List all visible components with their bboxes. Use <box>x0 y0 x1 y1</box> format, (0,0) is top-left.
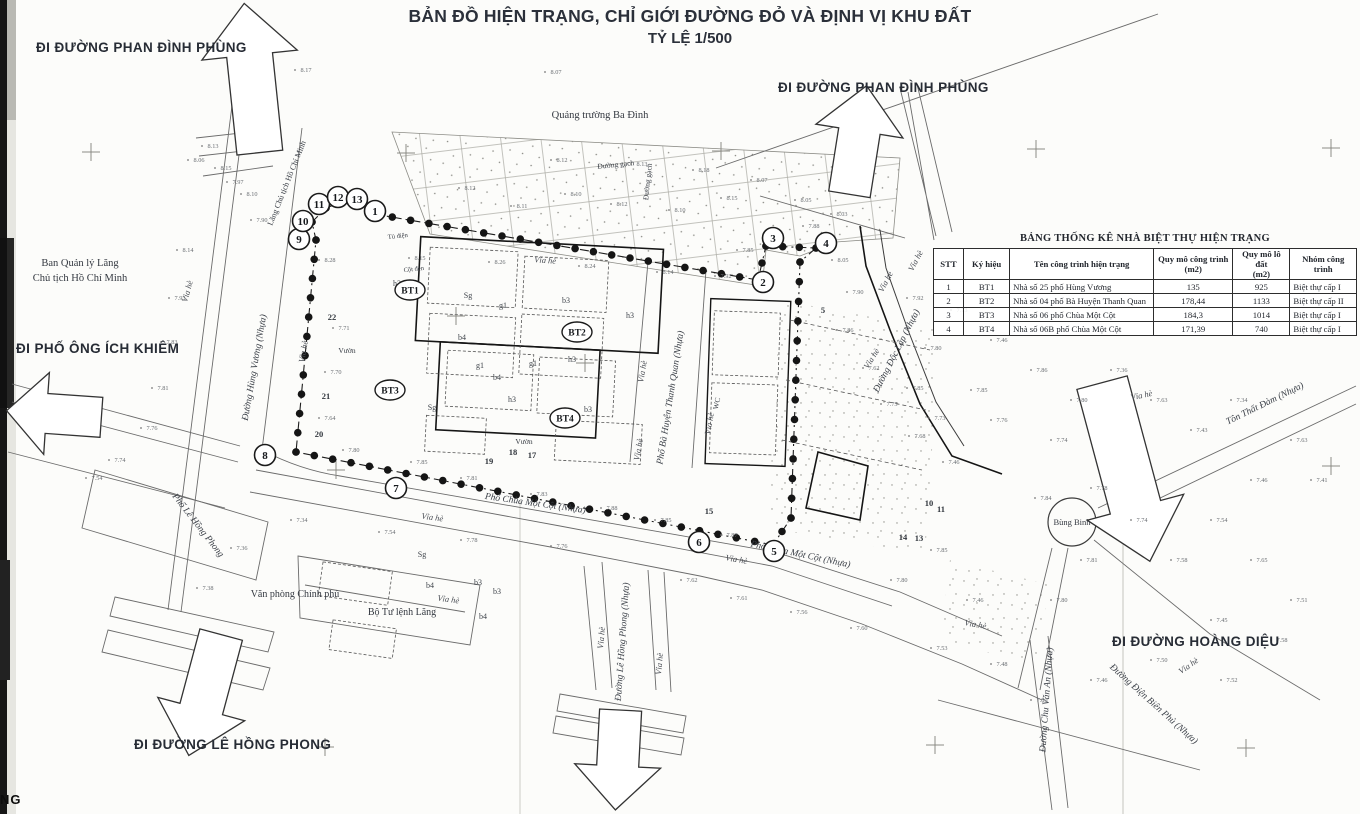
spot-elevation-dot <box>151 387 153 389</box>
spot-elevation: 8.26 <box>494 259 505 266</box>
spot-elevation: 8.05 <box>837 257 848 264</box>
spot-elevation: 7.80 <box>896 577 907 584</box>
spot-elevation: 7.71 <box>338 325 349 332</box>
block-code: h3 <box>568 355 576 364</box>
boundary-dot <box>571 245 579 253</box>
spot-elevation: 7.90 <box>256 217 267 224</box>
boundary-dot <box>310 255 318 263</box>
boundary-dot <box>699 267 707 275</box>
boundary-dot <box>498 232 506 240</box>
spot-elevation: 8.07 <box>756 177 767 184</box>
spot-elevation: 8.10 <box>570 191 581 198</box>
spot-elevation: 8.24 <box>584 263 596 270</box>
spot-elevation-dot <box>1070 399 1072 401</box>
spot-elevation: 7.46 <box>948 459 959 466</box>
boundary-dot <box>517 235 525 243</box>
spot-elevation: 8.12 <box>616 201 627 208</box>
spot-elevation: 7.36 <box>236 545 247 552</box>
spot-elevation-dot <box>1150 659 1152 661</box>
boundary-dot <box>681 264 689 272</box>
boundary-dot <box>795 298 803 306</box>
spot-elevation-dot <box>564 193 566 195</box>
spot-elevation-dot <box>176 249 178 251</box>
stats-cell: Biệt thự cấp I <box>1290 322 1357 336</box>
spot-elevation-dot <box>140 427 142 429</box>
spot-elevation: 7.45 <box>1216 617 1227 624</box>
spot-elevation-dot <box>1090 679 1092 681</box>
spot-elevation: 7.76 <box>996 417 1007 424</box>
spot-elevation-dot <box>290 519 292 521</box>
map-canvas: Quảng trường Ba ĐìnhBan Quản lý LăngChủ … <box>0 0 1360 814</box>
spot-elevation: 7.46 <box>1256 477 1267 484</box>
spot-elevation: 7.46 <box>996 337 1007 344</box>
boundary-dot <box>678 523 686 531</box>
boundary-dot <box>439 477 447 485</box>
boundary-point-number: 4 <box>823 238 829 250</box>
spot-elevation-dot <box>460 539 462 541</box>
crosshair-mark <box>1322 457 1340 475</box>
spot-elevation-dot <box>928 417 930 419</box>
lot-number: 5 <box>821 305 825 315</box>
spot-elevation: 7.81 <box>466 475 477 482</box>
boundary-dot <box>793 337 801 345</box>
spot-elevation-dot <box>1190 429 1192 431</box>
block-code: b3 <box>562 296 570 305</box>
block-code: b3 <box>493 587 501 596</box>
spot-elevation: 7.51 <box>1296 597 1307 604</box>
direction-arrows <box>7 3 1184 810</box>
spot-elevation: 7.63 <box>1156 397 1167 404</box>
spot-elevation-dot <box>458 187 460 189</box>
boundary-dot <box>792 376 800 384</box>
spot-elevation-dot <box>1220 679 1222 681</box>
direction-arrow <box>575 709 661 810</box>
stats-cell: 2 <box>934 294 964 308</box>
crosshair-mark <box>576 354 594 372</box>
spot-elevation: 7.83 <box>536 491 547 498</box>
boundary-dot <box>384 466 392 474</box>
spot-elevation-dot <box>1050 599 1052 601</box>
scan-corner-fragment: NG <box>0 792 22 807</box>
spot-elevation: 7.86 <box>842 327 853 334</box>
spot-elevation: 8.03 <box>836 211 847 218</box>
spot-elevation: 7.58 <box>1176 557 1187 564</box>
boundary-point-number: 1 <box>372 206 378 218</box>
sheet-title: BẢN ĐỒ HIỆN TRẠNG, CHỈ GIỚI ĐƯỜNG ĐỎ VÀ … <box>340 6 1040 47</box>
spot-elevation-dot <box>530 493 532 495</box>
boundary-dot <box>663 261 671 269</box>
spot-elevation: 7.56 <box>796 609 807 616</box>
spot-elevation-dot <box>378 531 380 533</box>
spot-elevation: 8.07 <box>550 69 561 76</box>
boundary-dot <box>294 429 302 437</box>
spot-elevation-dot <box>550 545 552 547</box>
crosshair-mark <box>1322 139 1340 157</box>
stats-header-cell: Quy mô công trình (m2) <box>1154 249 1233 280</box>
spot-elevation: 8.15 <box>414 255 425 262</box>
spot-elevation-dot <box>1080 559 1082 561</box>
direction-label: ĐI PHỐ ÔNG ÍCH KHIÊM <box>16 341 179 356</box>
spot-elevation: 8.18 <box>698 167 709 174</box>
crosshair-mark <box>1237 739 1255 757</box>
spot-elevation-dot <box>294 69 296 71</box>
spot-elevation: 7.74 <box>114 457 126 464</box>
spot-elevation: 7.85 <box>660 517 671 524</box>
lot-number: 14 <box>899 532 908 542</box>
sidewalk-label: Vỉa hè <box>421 511 444 524</box>
spot-elevation: 8.17 <box>300 67 311 74</box>
sidewalk-label: Vỉa hè <box>702 412 716 436</box>
direction-arrow <box>202 3 297 155</box>
spot-elevation: 8.12 <box>556 157 567 164</box>
spot-elevation-dot <box>970 389 972 391</box>
spot-elevation-dot <box>1290 439 1292 441</box>
boundary-dot <box>305 313 313 321</box>
lot-number: 21 <box>322 391 331 401</box>
boundary-dot <box>443 223 451 231</box>
boundary-dot <box>789 455 797 463</box>
spot-elevation: 7.85 <box>936 547 947 554</box>
spot-elevation-dot <box>1030 699 1032 701</box>
boundary-dot <box>626 254 634 262</box>
boundary-dot <box>292 448 300 456</box>
spot-elevation: 8.13 <box>636 161 647 168</box>
spot-elevation: 7.46 <box>972 597 983 604</box>
table-row: 2BT2Nhà số 04 phố Bà Huyện Thanh Quan178… <box>934 294 1357 308</box>
spot-elevation: 8.14 <box>182 247 194 254</box>
sidewalk-label: Vỉa hè <box>437 593 460 606</box>
spot-elevation: 7.81 <box>157 385 168 392</box>
boundary-dot <box>790 435 798 443</box>
lot-number: 19 <box>485 456 494 466</box>
spot-elevation-dot <box>680 579 682 581</box>
stats-cell: Nhà số 06B phố Chùa Một Cột <box>1010 322 1154 336</box>
stats-cell: Nhà số 25 phố Hùng Vương <box>1010 280 1154 294</box>
boundary-point-number: 8 <box>262 450 268 462</box>
spot-elevation: 7.41 <box>1316 477 1327 484</box>
sheet-title-scale: TỶ LỆ 1/500 <box>340 30 1040 47</box>
stats-table: STTKý hiệuTên công trình hiện trạngQuy m… <box>933 248 1357 336</box>
spot-elevation-dot <box>1250 559 1252 561</box>
table-row: 3BT3Nhà số 06 phố Chùa Một Cột184,31014B… <box>934 308 1357 322</box>
spot-elevation: 7.97 <box>232 179 243 186</box>
street-label: Phố Chùa Một Cột (Nhựa) <box>483 491 586 516</box>
spot-elevation: 8.11 <box>517 203 528 210</box>
spot-elevation: 8.14 <box>662 269 674 276</box>
boundary-dot <box>793 357 801 365</box>
lot-number: 22 <box>328 312 337 322</box>
spot-elevation-dot <box>720 197 722 199</box>
place-label: Vườn <box>515 437 532 446</box>
stats-header-cell: STT <box>934 249 964 280</box>
spot-elevation: 7.76 <box>146 425 157 432</box>
sidewalk-label: Vỉa hè <box>653 652 665 675</box>
spot-elevation-dot <box>226 181 228 183</box>
spot-elevation: 7.60 <box>856 625 867 632</box>
spot-elevation: 7.34 <box>296 517 308 524</box>
spot-elevation: 7.85 <box>912 385 923 392</box>
spot-elevation-dot <box>1230 399 1232 401</box>
spot-elevation: 7.75 <box>886 401 897 408</box>
boundary-dot <box>312 236 320 244</box>
sheet-title-line1: BẢN ĐỒ HIỆN TRẠNG, CHỈ GIỚI ĐƯỜNG ĐỎ VÀ … <box>340 6 1040 27</box>
spot-elevation-dot <box>656 271 658 273</box>
spot-elevation-dot <box>187 159 189 161</box>
spot-elevation: 7.62 <box>868 365 879 372</box>
spot-elevation: 7.50 <box>1156 657 1167 664</box>
spot-elevation: 7.34 <box>1236 397 1248 404</box>
spot-elevation: 7.46 <box>1096 677 1107 684</box>
spot-elevation-dot <box>1150 399 1152 401</box>
spot-elevation: 7.90 <box>852 289 863 296</box>
boundary-dot <box>309 275 317 283</box>
spot-elevation-dot <box>880 403 882 405</box>
spot-elevation: 7.80 <box>930 345 941 352</box>
boundary-dot <box>794 317 802 325</box>
boundary-dot <box>311 452 319 460</box>
boundary-dot <box>300 371 308 379</box>
boundary-dot <box>329 455 337 463</box>
stats-cell: Biệt thự cấp I <box>1290 280 1357 294</box>
spot-elevation: 7.70 <box>330 369 341 376</box>
spot-elevation-dot <box>1030 369 1032 371</box>
place-label: Ban Quản lý Lăng <box>41 258 119 269</box>
block-code: g1 <box>476 361 484 370</box>
block-code: b3 <box>474 578 482 587</box>
spot-elevation-dot <box>250 219 252 221</box>
lot-number: 11 <box>937 504 945 514</box>
block-code: h3 <box>508 395 516 404</box>
spot-elevation-dot <box>1090 487 1092 489</box>
stats-header-cell: Tên công trình hiện trạng <box>1010 249 1154 280</box>
stats-cell: 1014 <box>1233 308 1290 322</box>
spot-elevation: 7.85 <box>742 247 753 254</box>
map-sheet: Quảng trường Ba ĐìnhBan Quản lý LăngChủ … <box>0 0 1360 814</box>
spot-elevation: 8.05 <box>800 197 811 204</box>
spot-elevation-dot <box>1034 497 1036 499</box>
spot-elevation-dot <box>930 549 932 551</box>
lot-number: 13 <box>915 533 924 543</box>
boundary-dot <box>608 251 616 259</box>
spot-elevation-dot <box>332 327 334 329</box>
spot-elevation: 8.06 <box>193 157 204 164</box>
boundary-dot <box>791 416 799 424</box>
spot-elevation: 7.80 <box>1036 697 1047 704</box>
spot-elevation: 8.15 <box>726 195 737 202</box>
spot-elevation-dot <box>108 459 110 461</box>
street-label: Đường Hùng Vương (Nhựa) <box>240 314 270 423</box>
spot-elevation: 7.38 <box>202 585 213 592</box>
spot-elevation-dot <box>510 205 512 207</box>
sidewalk-label: Vỉa hè <box>296 340 310 364</box>
place-label: Cột đèn <box>403 265 425 274</box>
villa-stats-table: BẢNG THỐNG KÊ NHÀ BIỆT THỰ HIỆN TRẠNG ST… <box>933 233 1357 336</box>
spot-elevation-dot <box>924 347 926 349</box>
boundary-point-number: 2 <box>760 277 766 289</box>
crosshair-mark <box>82 143 100 161</box>
block-code: b4 <box>493 373 501 382</box>
stats-table-header: STTKý hiệuTên công trình hiện trạngQuy m… <box>934 249 1357 280</box>
spot-elevation: 7.92 <box>720 273 731 280</box>
spot-elevation-dot <box>550 159 552 161</box>
spot-elevation: 7.78 <box>1096 485 1107 492</box>
sidewalk-label: Vỉa hè <box>631 438 645 462</box>
stats-cell: 1133 <box>1233 294 1290 308</box>
boundary-dot <box>307 294 315 302</box>
spot-elevation-dot <box>1310 479 1312 481</box>
boundary-dot <box>298 390 306 398</box>
spot-elevation-dot <box>862 367 864 369</box>
sidewalk-label: Vỉa hè <box>1130 388 1154 402</box>
stats-cell: Nhà số 04 phố Bà Huyện Thanh Quan <box>1010 294 1154 308</box>
stats-cell: 135 <box>1154 280 1233 294</box>
boundary-dot <box>421 473 429 481</box>
street-label: Phố Bà Huyện Thanh Quan (Nhựa) <box>654 330 686 466</box>
block-code: h3 <box>626 311 634 320</box>
spot-elevation-dot <box>750 179 752 181</box>
table-row: 1BT1Nhà số 25 phố Hùng Vương135925Biệt t… <box>934 280 1357 294</box>
stats-cell: Biệt thự cấp II <box>1290 294 1357 308</box>
spot-elevation: 7.93 <box>174 295 185 302</box>
spot-elevation-dot <box>1130 519 1132 521</box>
spot-elevation: 7.78 <box>466 537 477 544</box>
block-code: b3 <box>584 405 592 414</box>
boundary-dot <box>402 470 410 478</box>
spot-elevation: 7.54 <box>91 475 103 482</box>
spot-elevation-dot <box>544 71 546 73</box>
direction-label: ĐI ĐƯỜNG PHAN ĐÌNH PHÙNG <box>36 40 247 55</box>
spot-elevation-dot <box>831 259 833 261</box>
spot-elevation-dot <box>488 261 490 263</box>
spot-elevation: 8.10 <box>674 207 685 214</box>
boundary-point-number: 3 <box>770 233 776 245</box>
spot-elevation-dot <box>1110 369 1112 371</box>
spot-elevation-dot <box>318 417 320 419</box>
direction-label: ĐI ĐƯỜNG HOÀNG DIỆU <box>1112 634 1280 649</box>
sidewalk-label: Vỉa hè <box>725 552 749 566</box>
scan-artifacts <box>0 0 1123 814</box>
spot-elevation-dot <box>836 329 838 331</box>
boundary-point-number: 7 <box>393 483 399 495</box>
boundary-dot <box>480 229 488 237</box>
stipple-region-southeast <box>940 560 1050 665</box>
spot-elevation: 7.36 <box>1116 367 1127 374</box>
boundary-point-number: 13 <box>352 194 364 206</box>
place-label: Chủ tịch Hồ Chí Minh <box>33 273 128 284</box>
boundary-dot <box>789 475 797 483</box>
block-code: Sg <box>428 403 436 412</box>
block-code: b4 <box>458 333 466 342</box>
block-code: g1 <box>499 301 507 310</box>
boundary-dot <box>796 244 804 252</box>
spot-elevation-dot <box>410 461 412 463</box>
spot-elevation-dot <box>1290 599 1292 601</box>
stats-header-cell: Nhóm công trình <box>1290 249 1357 280</box>
lot-number: 15 <box>705 506 714 516</box>
block-code: Sg <box>418 550 426 559</box>
place-label: Quảng trường Ba Đình <box>552 110 649 121</box>
spot-elevation-dot <box>600 507 602 509</box>
direction-label: ĐI ĐƯỜNG PHAN ĐÌNH PHÙNG <box>778 80 989 95</box>
boundary-point-number: 6 <box>696 537 702 549</box>
boundary-dot <box>586 505 594 513</box>
boundary-dot <box>457 480 465 488</box>
spot-elevation: 7.54 <box>384 529 396 536</box>
spot-elevation-dot <box>802 225 804 227</box>
boundary-dot <box>476 484 484 492</box>
spot-elevation-dot <box>1210 619 1212 621</box>
spot-elevation-dot <box>714 275 716 277</box>
spot-elevation: 7.81 <box>1086 557 1097 564</box>
spot-elevation: 7.92 <box>912 295 923 302</box>
boundary-dot <box>366 463 374 471</box>
spot-elevation-dot <box>942 461 944 463</box>
spot-elevation-dot <box>324 371 326 373</box>
boundary-dot <box>462 226 470 234</box>
spot-elevation-dot <box>790 611 792 613</box>
spot-elevation: 7.65 <box>1256 557 1267 564</box>
direction-arrow <box>7 373 103 455</box>
direction-label: ĐI ĐƯỜNG LÊ HỒNG PHONG <box>134 737 331 752</box>
boundary-point-number: 11 <box>314 199 324 211</box>
boundary-point-number: 9 <box>296 234 302 246</box>
spot-elevation: 7.85 <box>416 459 427 466</box>
spot-elevation: 7.88 <box>606 505 617 512</box>
stats-cell: BT4 <box>964 322 1010 336</box>
spot-elevation: 7.48 <box>996 661 1007 668</box>
spot-elevation: 7.43 <box>1196 427 1207 434</box>
spot-elevation: 8.10 <box>246 191 257 198</box>
stats-cell: Biệt thự cấp I <box>1290 308 1357 322</box>
boundary-point-number: 5 <box>771 546 777 558</box>
sidewalk-label: Vỉa hè <box>635 360 649 384</box>
spot-elevation-dot <box>794 199 796 201</box>
sidewalk-label: Vỉa hè <box>906 248 925 272</box>
spot-elevation: 7.87 <box>726 532 737 539</box>
boundary-dot <box>796 258 804 266</box>
street-label: Đường Điện Biên Phủ (Nhựa) <box>1107 661 1200 747</box>
stats-cell: BT3 <box>964 308 1010 322</box>
block-code: b4 <box>479 612 487 621</box>
stats-cell: 1 <box>934 280 964 294</box>
spot-elevation: 7.86 <box>1036 367 1047 374</box>
stats-cell: 740 <box>1233 322 1290 336</box>
boundary-dot <box>425 220 433 228</box>
spot-elevation-dot <box>1050 439 1052 441</box>
street-label: Đường Lê Hồng Phong (Nhựa) <box>613 582 632 702</box>
spot-elevation-dot <box>890 579 892 581</box>
place-label: Bùng Binh <box>1053 517 1091 527</box>
spot-elevation-dot <box>654 519 656 521</box>
spot-elevation-dot <box>460 477 462 479</box>
spot-elevation-dot <box>168 297 170 299</box>
spot-elevation-dot <box>318 259 320 261</box>
sidewalk-label: Vỉa hè <box>876 269 895 293</box>
spot-elevation-dot <box>692 169 694 171</box>
stats-cell: 171,39 <box>1154 322 1233 336</box>
spot-elevation-dot <box>201 145 203 147</box>
spot-elevation-dot <box>990 419 992 421</box>
boundary-dot <box>389 213 397 221</box>
villa-marker-label: BT3 <box>381 386 399 396</box>
stats-cell: Nhà số 06 phố Chùa Một Cột <box>1010 308 1154 322</box>
place-label: Tủ điện <box>388 232 409 241</box>
crosshair-mark <box>1027 140 1045 158</box>
spot-elevation: 7.68 <box>914 433 925 440</box>
boundary-dot <box>796 278 804 286</box>
boundary-dot <box>788 495 796 503</box>
spot-elevation: 7.74 <box>1136 517 1148 524</box>
